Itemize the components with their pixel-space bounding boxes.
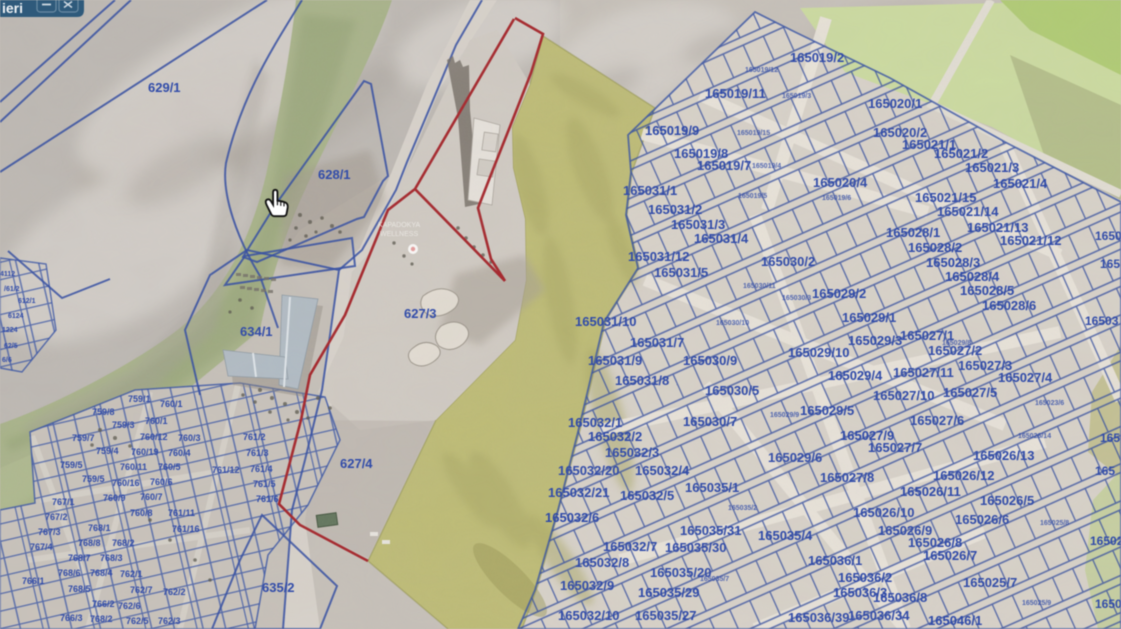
svg-text:ieri: ieri — [2, 0, 23, 16]
